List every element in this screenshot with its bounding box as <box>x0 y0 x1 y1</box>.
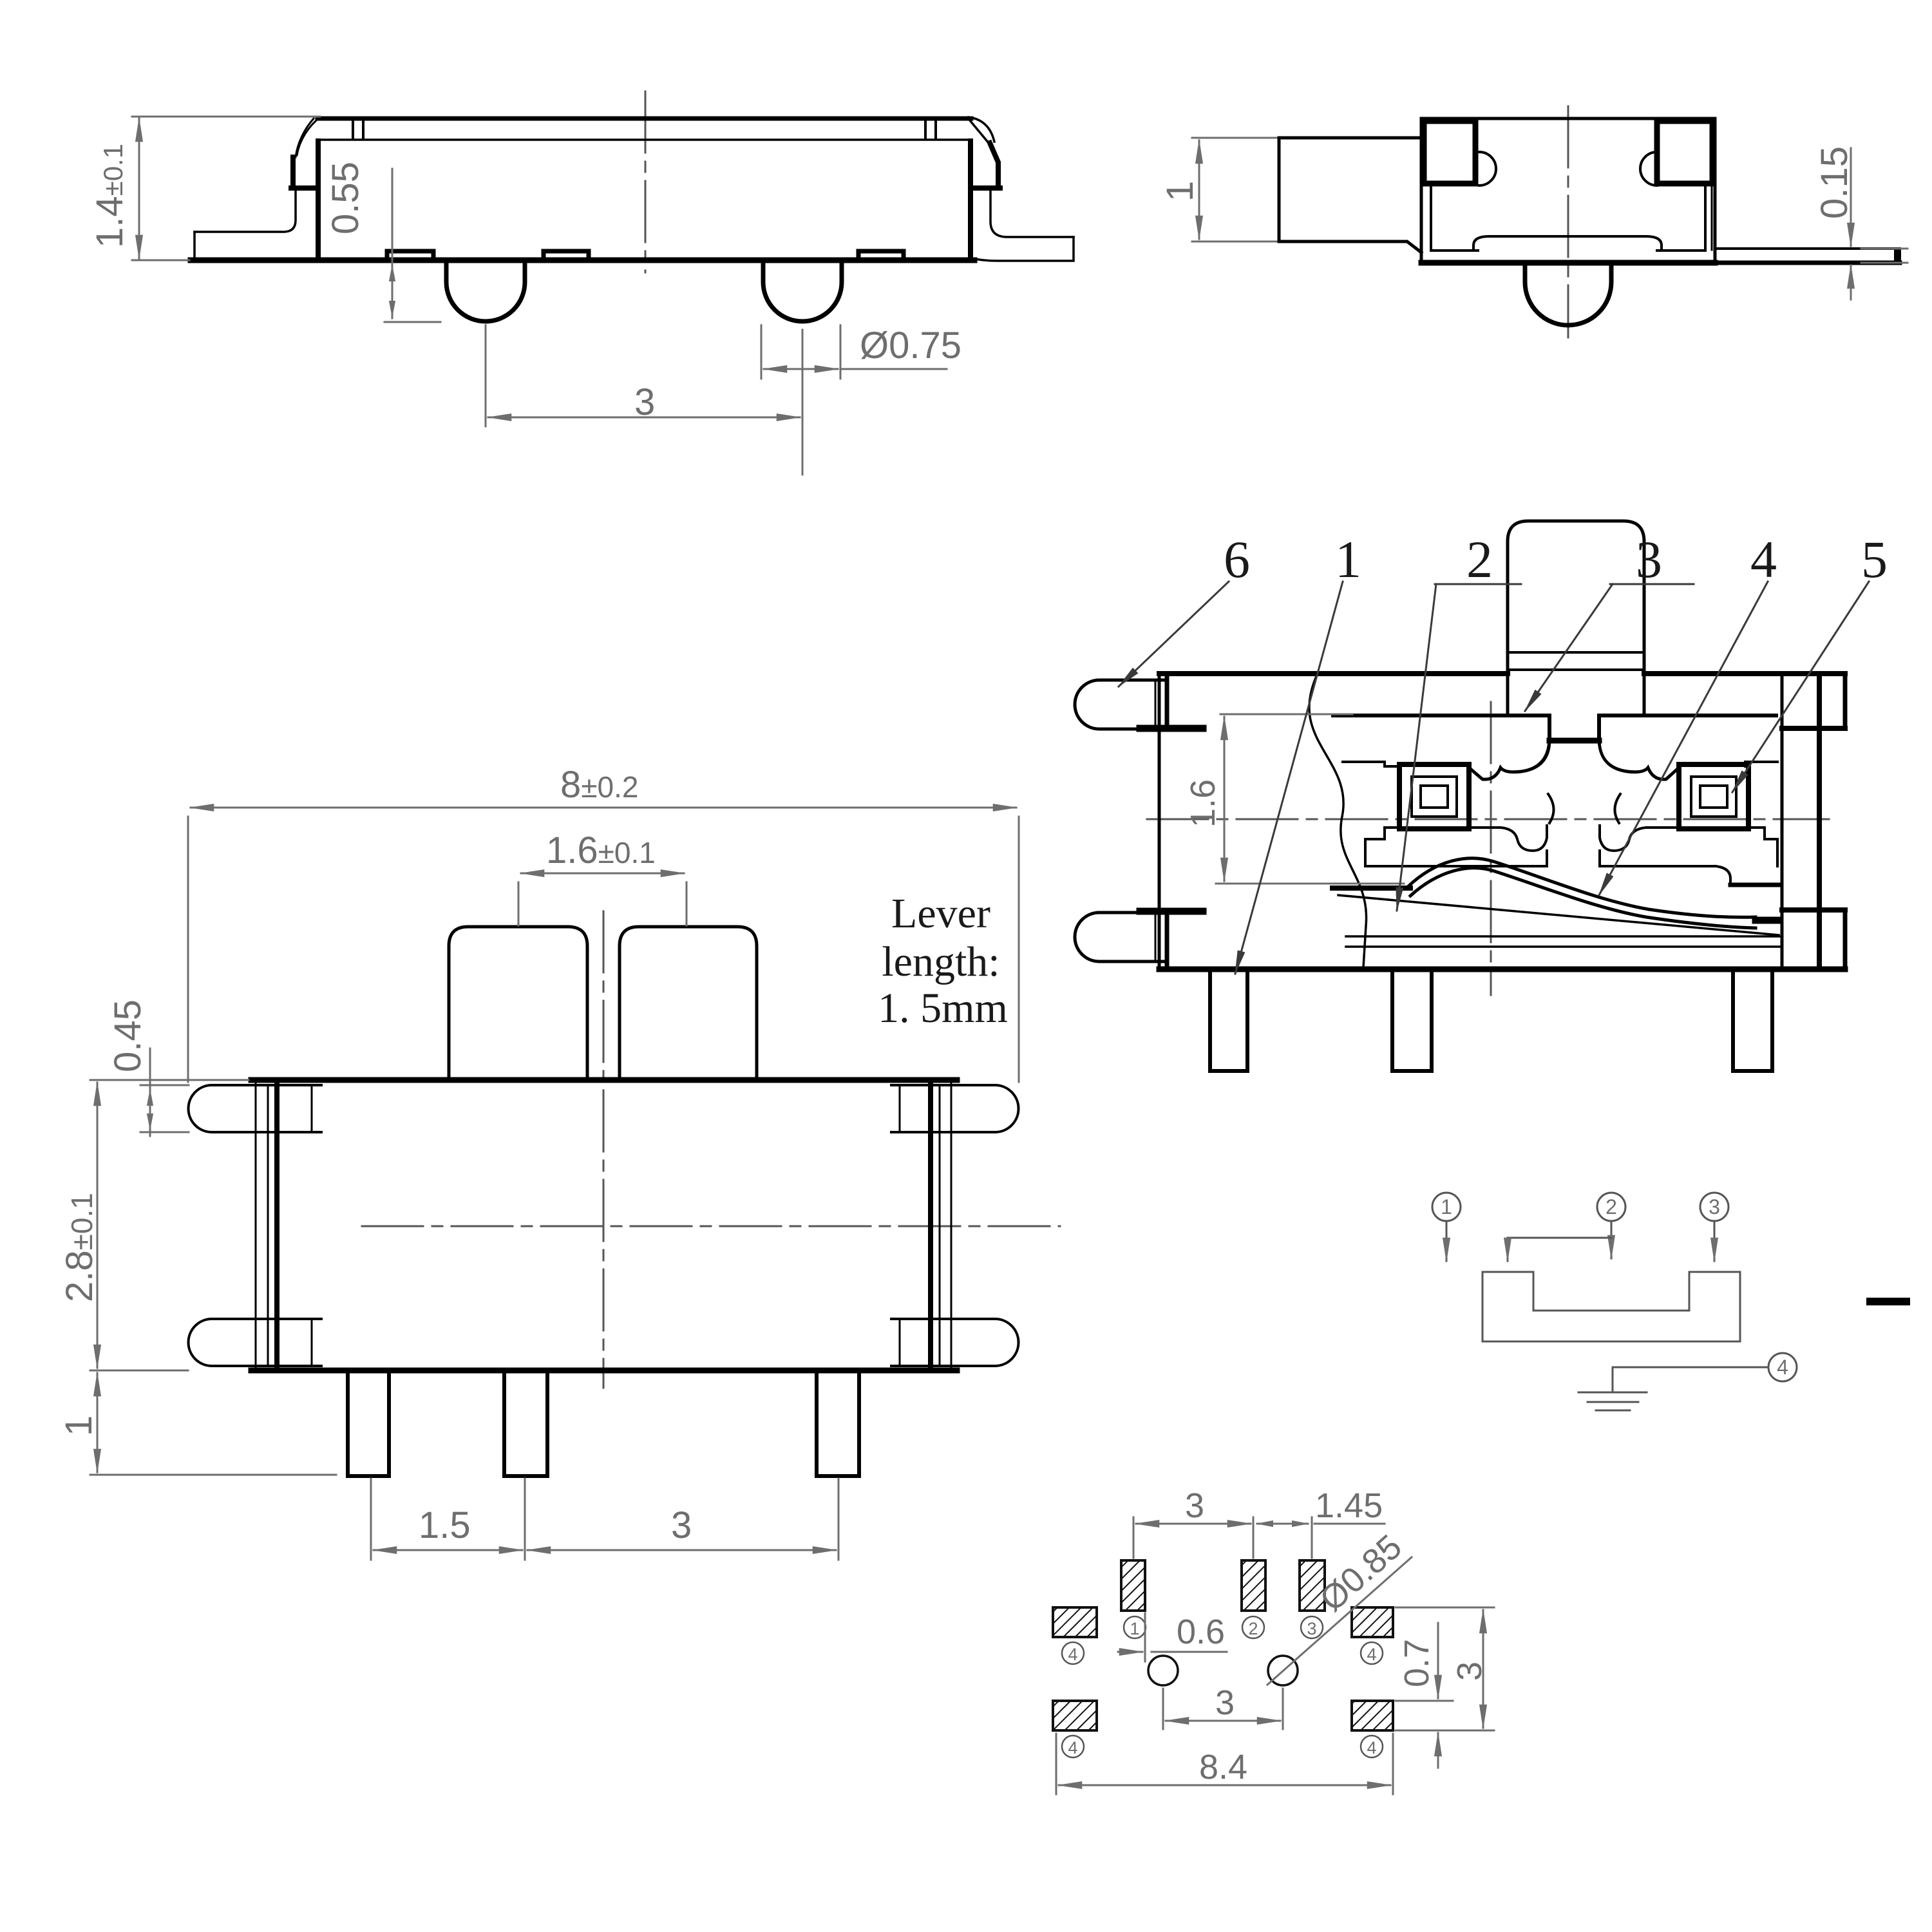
svg-text:4: 4 <box>1750 530 1777 589</box>
svg-text:2: 2 <box>1466 530 1493 589</box>
svg-text:2: 2 <box>1605 1195 1617 1218</box>
svg-text:2.8±0.1: 2.8±0.1 <box>59 1193 100 1302</box>
svg-text:1: 1 <box>1335 530 1361 589</box>
svg-text:3: 3 <box>1185 1486 1204 1525</box>
svg-text:8±0.2: 8±0.2 <box>560 764 638 806</box>
svg-text:0.45: 0.45 <box>107 999 149 1072</box>
svg-text:1: 1 <box>1159 181 1201 202</box>
svg-text:6: 6 <box>1224 530 1250 589</box>
svg-text:0.55: 0.55 <box>325 162 366 234</box>
svg-text:3: 3 <box>1307 1619 1316 1638</box>
svg-text:1.6±0.1: 1.6±0.1 <box>546 829 656 871</box>
svg-text:1: 1 <box>58 1416 100 1436</box>
svg-text:0.6: 0.6 <box>1177 1613 1225 1651</box>
svg-text:length:: length: <box>882 938 999 985</box>
svg-text:4: 4 <box>1367 1738 1376 1757</box>
svg-text:3: 3 <box>671 1504 692 1546</box>
svg-text:1: 1 <box>1441 1195 1452 1218</box>
svg-text:3: 3 <box>1215 1683 1235 1722</box>
svg-text:0.15: 0.15 <box>1814 146 1855 219</box>
svg-text:3: 3 <box>1450 1662 1489 1681</box>
svg-text:1.45: 1.45 <box>1315 1486 1383 1525</box>
svg-text:1.6: 1.6 <box>1184 779 1222 828</box>
svg-text:3: 3 <box>634 381 655 423</box>
svg-text:1. 5mm: 1. 5mm <box>878 985 1008 1032</box>
svg-text:5: 5 <box>1861 530 1888 589</box>
svg-text:2: 2 <box>1248 1619 1258 1638</box>
svg-text:Ø0.75: Ø0.75 <box>860 325 961 366</box>
svg-text:4: 4 <box>1777 1356 1788 1379</box>
svg-text:8.4: 8.4 <box>1199 1748 1247 1786</box>
svg-text:4: 4 <box>1367 1645 1376 1664</box>
svg-text:Lever: Lever <box>891 890 990 937</box>
svg-text:0.7: 0.7 <box>1397 1639 1436 1687</box>
svg-text:4: 4 <box>1068 1645 1077 1664</box>
svg-text:3: 3 <box>1709 1195 1720 1218</box>
svg-text:4: 4 <box>1068 1738 1077 1757</box>
svg-text:3: 3 <box>1636 530 1662 589</box>
svg-text:1.5: 1.5 <box>419 1504 471 1546</box>
svg-text:1: 1 <box>1130 1619 1139 1638</box>
